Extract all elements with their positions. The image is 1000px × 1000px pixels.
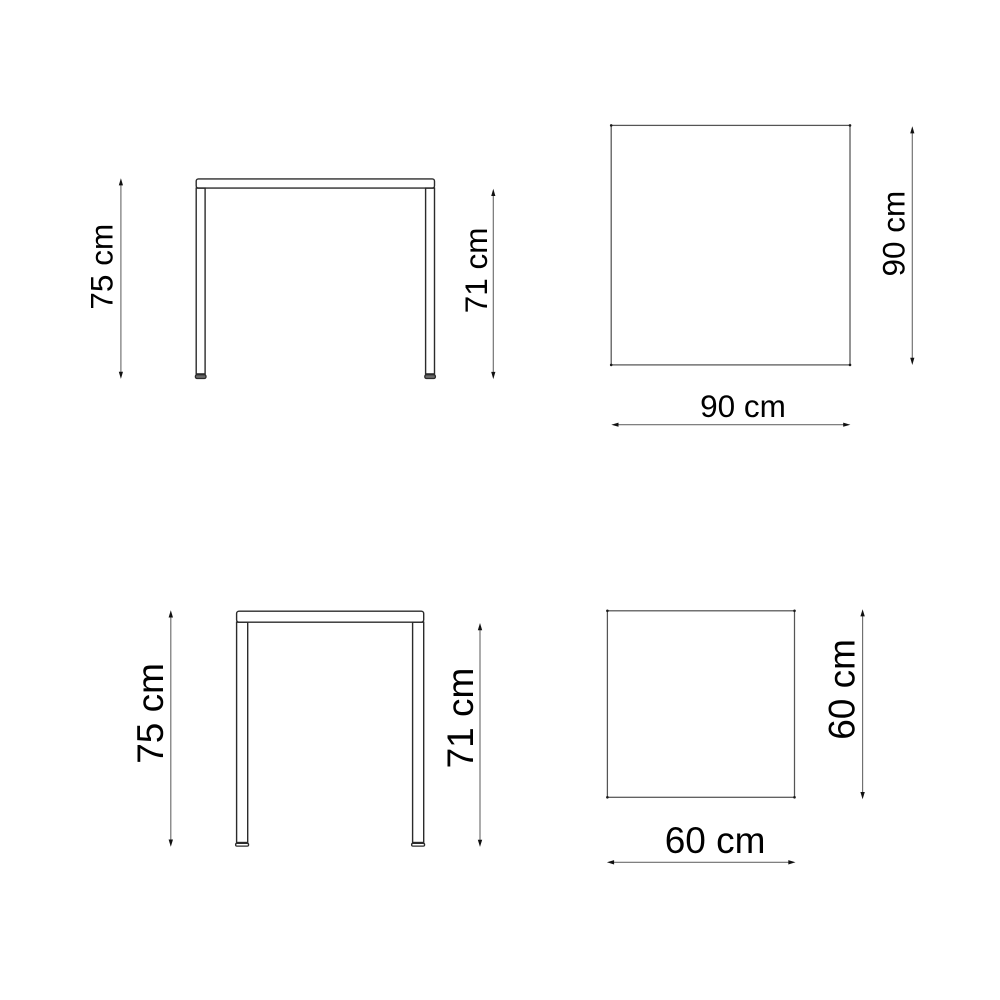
svg-text:75 cm: 75 cm [130, 663, 171, 764]
svg-text:90 cm: 90 cm [700, 388, 786, 424]
svg-text:90 cm: 90 cm [876, 191, 912, 277]
svg-text:60 cm: 60 cm [821, 639, 862, 740]
svg-text:71 cm: 71 cm [458, 228, 494, 314]
svg-text:60 cm: 60 cm [665, 820, 766, 861]
svg-text:75 cm: 75 cm [84, 224, 120, 310]
svg-text:71 cm: 71 cm [440, 668, 481, 769]
